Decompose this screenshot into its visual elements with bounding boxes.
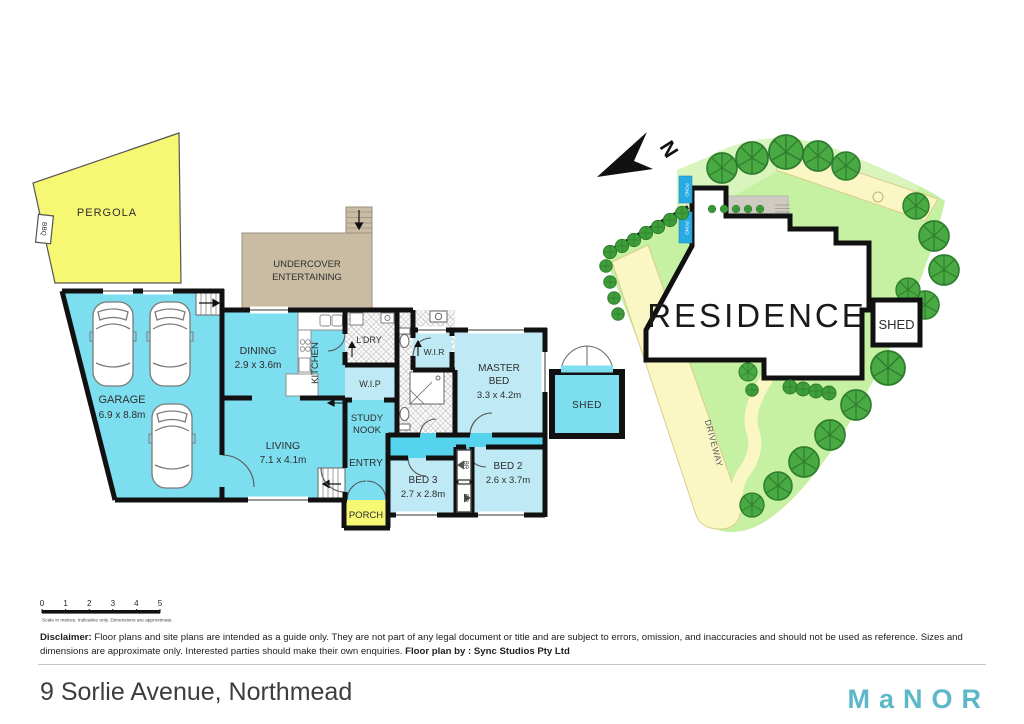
disclaimer-label: Disclaimer: [40,632,92,643]
entry-label: ENTRY [349,458,383,469]
garage-stairs [196,292,222,315]
living-label: LIVING [266,440,300,452]
disclaimer: Disclaimer: Floor plans and site plans a… [40,631,986,658]
bed3-dims: 2.7 x 2.8m [401,489,445,500]
site-plan: POND POND [597,132,959,532]
bbq: BBQ [36,214,54,243]
scale-tick-4: 4 [134,599,139,608]
wip-label: W.I.P [359,379,381,389]
dining-dims: 2.9 x 3.6m [235,360,282,371]
brand-logo: MaNOR [847,684,990,715]
scale-tick-0: 0 [40,599,45,608]
north-arrow-icon: N [597,132,682,177]
shed-site: SHED [873,300,920,345]
bed3-label: BED 3 [409,475,438,486]
shed-plan-label: SHED [572,400,602,411]
bed2-label: BED 2 [494,461,523,472]
garage-dims: 6.9 x 8.8m [99,410,146,421]
robes [457,450,471,512]
kitchen-label: KITCHEN [310,342,321,384]
master-dims: 3.3 x 4.2m [477,390,521,401]
pond1-label: POND [685,183,690,197]
living-dims: 7.1 x 4.1m [260,455,307,466]
pond2-label: POND [685,221,690,235]
master-label-1: MASTER [478,363,520,374]
pergola-label: PERGOLA [77,207,137,219]
north-label: N [655,137,683,162]
bbq-label: BBQ [39,222,47,236]
scale-tick-1: 1 [63,599,68,608]
floor-plan: BBQ [33,133,622,528]
bed3-area [388,458,456,515]
disclaimer-line1: Floor plans and site plans are intended … [94,632,918,643]
scale-bar-rule [42,610,160,614]
footer-divider [38,664,986,665]
study-label-1: STUDY [351,413,384,424]
floorplan-page: BBQ [0,0,1024,724]
shed-site-label: SHED [878,317,914,332]
undercover-steps [346,207,372,233]
laundry-label: L'DRY [356,335,382,345]
study-label-2: NOOK [353,425,382,436]
scale-tick-5: 5 [158,599,163,608]
residence-label: RESIDENCE [647,297,867,334]
scale-tick-2: 2 [87,599,92,608]
scale-tick-3: 3 [111,599,116,608]
disclaimer-credit: Floor plan by : Sync Studios Pty Ltd [405,646,570,657]
wir-label: W.I.R [424,347,445,357]
br1-label: BR [462,461,468,470]
shed-plan: SHED [552,346,622,436]
scale-bar: 0 1 2 3 4 5 Scale in metres. Indicative … [40,599,173,624]
garage-label: GARAGE [98,394,145,406]
entry-stairs [318,468,345,499]
scale-caption: Scale in metres. Indicative only. Dimens… [42,618,173,624]
porch-label: PORCH [349,510,383,521]
property-address: 9 Sorlie Avenue, Northmead [40,678,352,707]
plan-canvas: BBQ [0,0,1024,724]
br2-label: BR [462,494,468,503]
undercover-label-1: UNDERCOVER [273,259,341,270]
bed2-dims: 2.6 x 3.7m [486,475,530,486]
master-label-2: BED [489,376,510,387]
undercover-label-2: ENTERTAINING [272,272,342,283]
dining-label: DINING [240,345,277,357]
